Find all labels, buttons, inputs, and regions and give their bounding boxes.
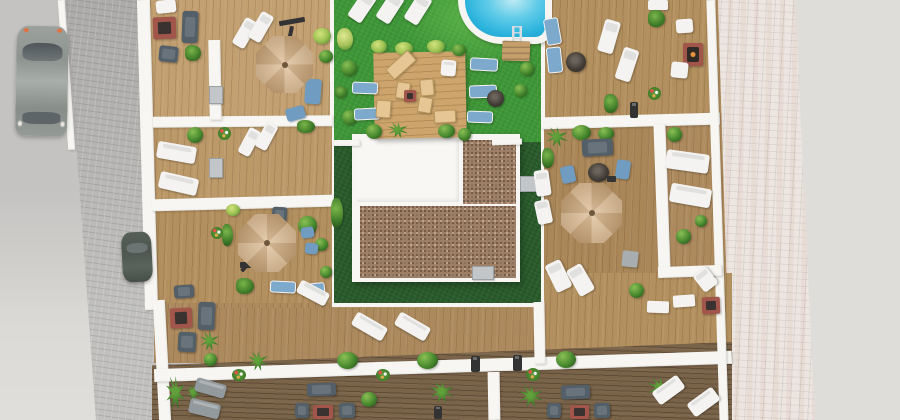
ac-unit [209,86,223,104]
bush [514,84,527,97]
scene-items [0,0,900,420]
bush [520,62,534,76]
bush [226,204,240,216]
outdoor-sofa [561,384,590,399]
bush [556,351,576,368]
sun-lounger [352,82,378,95]
chair [615,159,632,180]
ac-unit [209,158,223,178]
bush [427,40,445,53]
outdoor-sofa [304,78,322,104]
sun-lounger [440,59,456,76]
armchair [158,45,179,63]
outdoor-sofa [198,302,216,331]
lamp-post [513,355,522,371]
sun-lounger [434,109,457,123]
parked-car [15,26,69,137]
counter-table [673,294,696,308]
plant [542,148,554,168]
bush [452,44,466,56]
flower-pot [232,369,246,381]
counter-table [648,0,668,10]
outdoor-sofa [181,11,198,44]
plant [236,278,254,294]
plant [297,120,315,133]
bush [187,127,203,143]
wall-below-lawn-vertical [533,302,545,364]
outdoor-sofa [295,403,310,418]
lamp-post [630,102,638,118]
flower-pot [376,369,390,381]
wall-lawn-trim-right [492,138,522,145]
sun-lounger [403,0,432,26]
outdoor-sofa [339,403,356,419]
coffee-table [153,17,177,40]
outdoor-sofa [547,403,562,418]
outdoor-sofa [582,138,614,157]
plant [331,198,343,228]
side-table [487,90,504,107]
flower-pot [211,227,223,239]
bush [204,353,217,366]
plant [185,45,201,61]
plant [337,28,353,50]
sun-lounger [375,99,391,118]
sun-lounger [385,50,417,80]
bush [313,28,331,44]
bush [320,266,332,278]
bush [572,125,591,140]
outdoor-sofa [174,284,195,298]
plant [604,94,618,113]
outdoor-sofa [307,382,336,396]
sun-lounger [470,57,499,71]
sun-lounger [270,280,297,293]
bush [366,124,382,139]
parasol [561,183,622,243]
sun-lounger [347,0,377,24]
armchair [670,61,689,79]
bush [458,128,471,141]
outdoor-sofa [177,332,196,353]
sun-lounger [546,46,564,73]
bush [337,352,358,369]
side-table [566,52,586,72]
bush [417,352,438,369]
flower-pot [648,87,661,100]
bush [667,127,682,142]
sun-lounger [417,96,434,114]
bush [629,283,644,298]
aerial-rooftop-render [0,0,900,420]
umbrella-base [607,176,616,182]
wall-divider-vertical-left [208,40,221,120]
sun-lounger [419,78,434,96]
lamp-post [434,406,442,419]
bush [676,229,691,244]
bush [361,392,377,407]
chair [304,242,318,254]
wall-bottom-vertical [488,372,501,420]
coffee-table [169,307,192,328]
armchair [676,18,694,33]
fire-table [570,405,589,419]
bush [371,40,387,53]
roof-vent [472,266,494,280]
bush [341,60,357,76]
palm [388,122,408,138]
sun-lounger [467,111,493,124]
stool [621,250,639,268]
sun-lounger [375,0,405,25]
bush [695,215,707,227]
parked-car [121,231,154,283]
bush [319,50,333,63]
bush [438,124,455,138]
chair [300,226,314,239]
plant [222,224,233,246]
plant [648,10,665,27]
fire-table [588,163,609,182]
coffee-table [702,297,721,315]
wall-lawn-trim-left [334,140,360,146]
outdoor-sofa [155,0,176,14]
fire-table [313,405,333,419]
side-table [404,90,416,102]
flower-pot [526,368,540,381]
plant [335,86,347,98]
flower-pot [218,127,231,140]
counter-table [647,301,669,314]
outdoor-sofa [594,403,611,419]
lamp-post [471,356,480,372]
pool-steps [502,41,531,62]
